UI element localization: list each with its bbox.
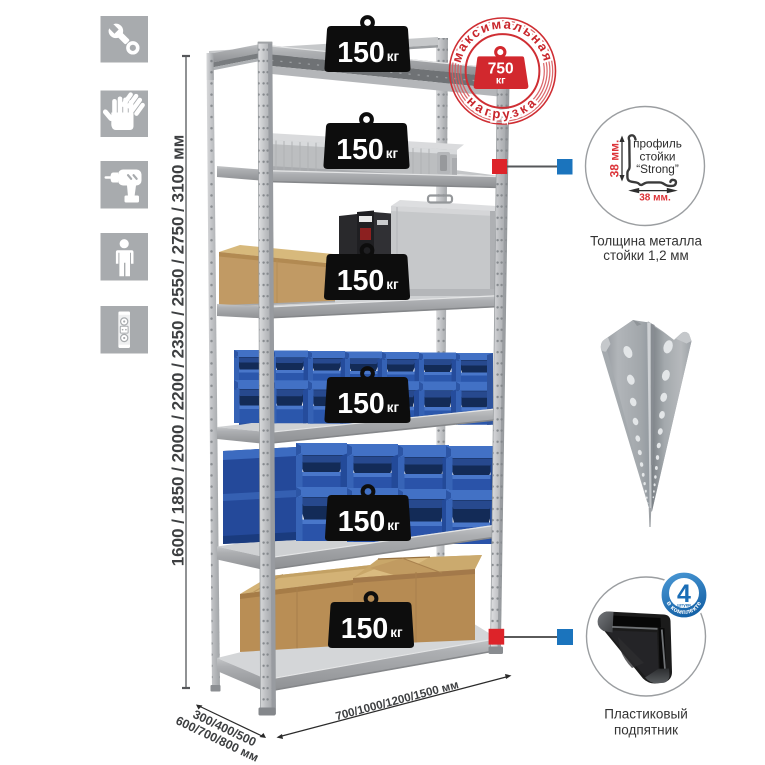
svg-text:стойки 1,2 мм: стойки 1,2 мм [603,248,688,263]
svg-text:кг: кг [496,75,506,87]
svg-text:38 мм.: 38 мм. [639,193,671,204]
svg-text:подпятник: подпятник [614,723,678,738]
svg-text:Толщина металла: Толщина металла [590,234,702,249]
svg-text:профиль: профиль [633,137,682,151]
svg-text:38 мм.: 38 мм. [608,140,622,178]
svg-text:штуки: штуки [677,602,691,607]
svg-text:“Strong”: “Strong” [636,162,679,176]
svg-text:Пластиковый: Пластиковый [604,707,688,722]
svg-text:1600 / 1850 / 2000 / 2200 / 23: 1600 / 1850 / 2000 / 2200 / 2350 / 2550 … [168,135,187,567]
